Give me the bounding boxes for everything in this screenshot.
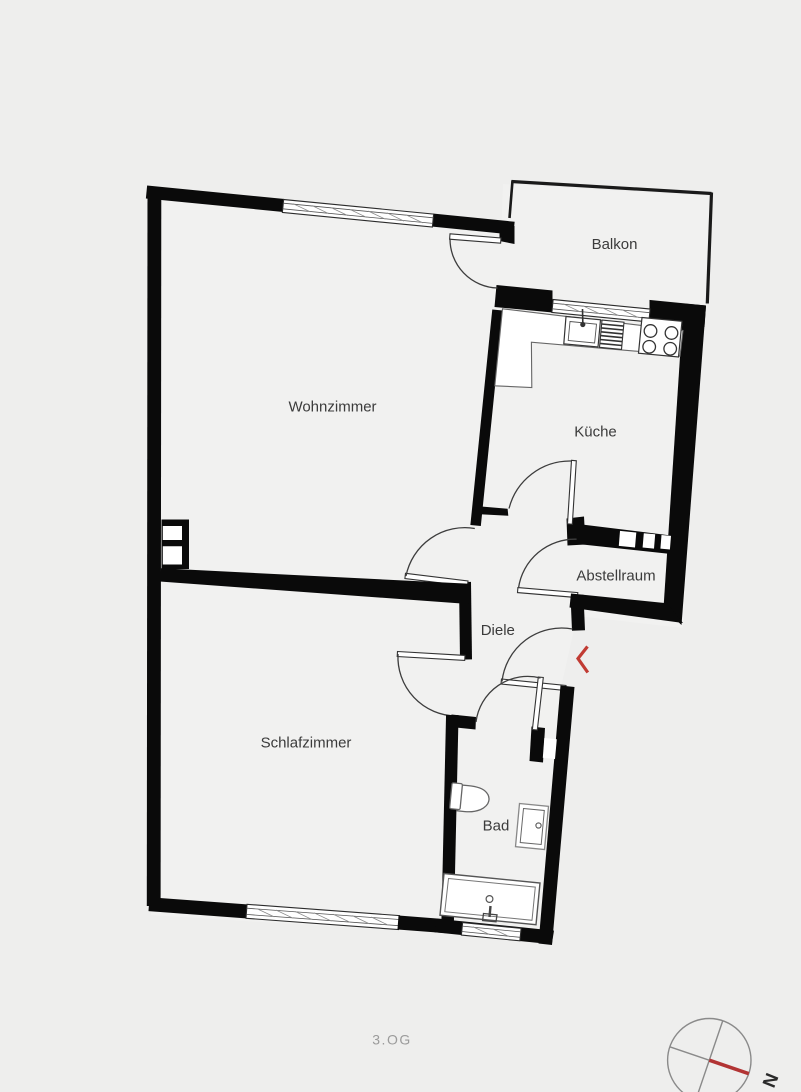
- svg-text:3.OG: 3.OG: [372, 1032, 411, 1048]
- svg-text:Bad: Bad: [483, 817, 510, 834]
- svg-text:Wohnzimmer: Wohnzimmer: [288, 399, 376, 416]
- svg-text:Balkon: Balkon: [592, 236, 638, 253]
- svg-text:Schlafzimmer: Schlafzimmer: [261, 735, 352, 752]
- svg-text:Küche: Küche: [574, 424, 617, 441]
- svg-text:Abstellraum: Abstellraum: [576, 568, 655, 585]
- svg-text:Diele: Diele: [481, 622, 515, 639]
